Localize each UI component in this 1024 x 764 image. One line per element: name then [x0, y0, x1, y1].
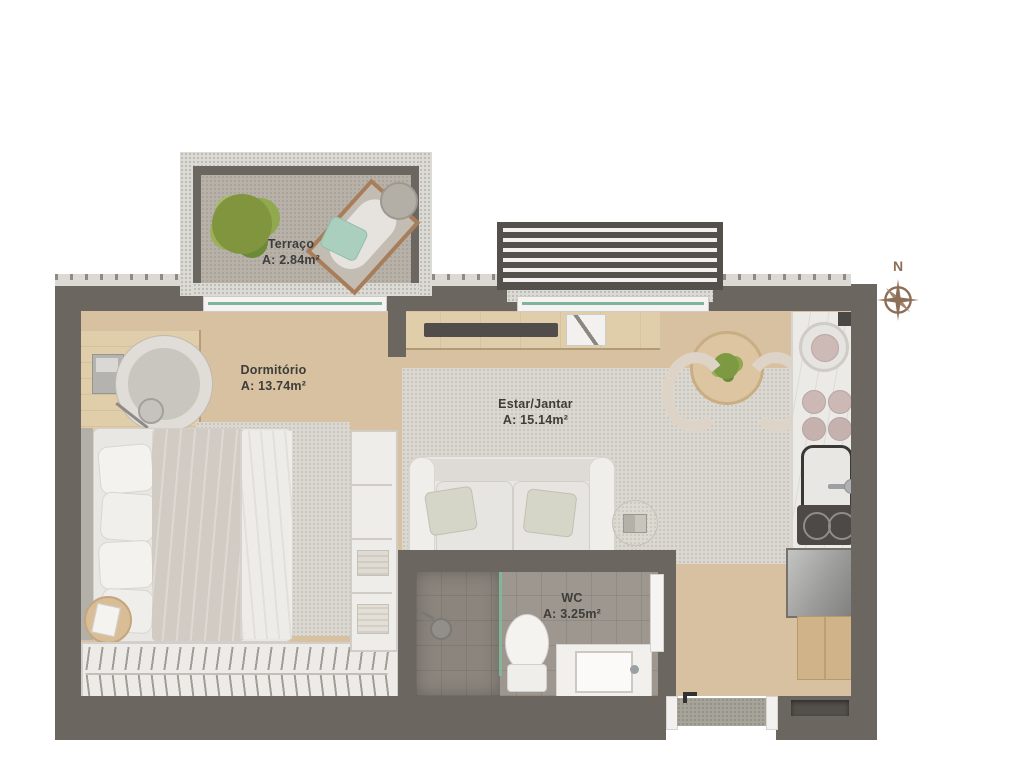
- floor-plan: N Terraço A: 2.84m² Dormitório A: 13.74m…: [0, 0, 1024, 764]
- laptop-screen: [96, 358, 118, 372]
- sofa-arm: [589, 457, 615, 561]
- entry-mat: [677, 698, 766, 726]
- compass-north-label: N: [866, 258, 930, 274]
- room-label-terrace: Terraço A: 2.84m²: [226, 236, 356, 269]
- towels: [357, 550, 389, 576]
- cooktop: [797, 505, 853, 545]
- sofa: [408, 456, 616, 562]
- terrace-outer-wall: [180, 152, 193, 296]
- terrace-sill: [193, 283, 419, 296]
- kitchen-cabinet: [797, 616, 853, 680]
- wall-stub: [388, 311, 406, 357]
- room-name: WC: [512, 590, 632, 606]
- room-label-wc: WC A: 3.25m²: [512, 590, 632, 623]
- window-glass: [208, 302, 382, 305]
- shelf: [352, 484, 392, 486]
- right-wall: [851, 284, 877, 740]
- plate: [828, 390, 852, 414]
- room-name: Dormitório: [196, 362, 351, 378]
- terrace-frame: [193, 166, 419, 175]
- top-wall: [55, 284, 877, 311]
- tv: [424, 323, 558, 337]
- sofa-pillow: [424, 486, 478, 537]
- duvet: [152, 429, 244, 641]
- louver-slats: [503, 228, 717, 284]
- book: [91, 603, 121, 637]
- bed-throw: [240, 431, 292, 639]
- hanger-row: [85, 647, 390, 670]
- room-area: A: 15.14m²: [458, 412, 613, 428]
- wc-door: [650, 574, 664, 652]
- decor-tray: [566, 314, 606, 346]
- plate: [802, 417, 826, 441]
- shower-floor: [416, 572, 500, 696]
- room-label-bedroom: Dormitório A: 13.74m²: [196, 362, 351, 395]
- room-name: Terraço: [226, 236, 356, 252]
- towels: [357, 604, 389, 634]
- plate: [828, 417, 852, 441]
- shelf-unit: [350, 430, 398, 652]
- pillow: [99, 491, 156, 543]
- sofa-pillow: [523, 488, 578, 538]
- wall-hatch: [723, 274, 851, 286]
- terrace-outer-wall: [180, 152, 432, 166]
- left-wall: [55, 284, 81, 740]
- open-book: [623, 514, 647, 533]
- hanger-row: [85, 673, 390, 698]
- kitchen-switch: [838, 312, 852, 326]
- bedside-table: [84, 596, 132, 644]
- burner: [803, 512, 831, 540]
- shower-head-icon: [430, 618, 452, 640]
- wall-hatch: [55, 274, 181, 286]
- wall-hatch: [432, 274, 497, 286]
- wc-top-wall: [398, 550, 676, 572]
- shelf: [352, 592, 392, 594]
- shelf: [352, 538, 392, 540]
- pillow: [98, 540, 154, 591]
- wc-vanity: [556, 644, 652, 698]
- wall-niche: [791, 700, 849, 716]
- toilet-tank: [507, 664, 547, 692]
- room-area: A: 3.25m²: [512, 606, 632, 622]
- compass-rose-icon: [876, 278, 920, 322]
- pillow: [97, 443, 155, 496]
- louver-panel: [497, 222, 723, 290]
- pouf: [612, 500, 658, 546]
- shower-glass: [499, 572, 502, 676]
- sofa-back: [411, 459, 611, 481]
- window-glass: [522, 302, 704, 305]
- room-area: A: 2.84m²: [226, 252, 356, 268]
- terrace-outer-wall: [419, 152, 432, 296]
- bowl-stack: [799, 322, 849, 372]
- door-jamb: [766, 696, 778, 730]
- compass: N: [866, 258, 930, 338]
- wc-faucet: [630, 665, 639, 674]
- terrace-frame: [193, 166, 201, 296]
- terrace-side-table: [380, 182, 418, 220]
- wc-left-wall: [398, 550, 416, 698]
- bowl: [811, 334, 839, 362]
- fridge: [786, 548, 854, 618]
- lamp-head: [138, 398, 164, 424]
- plate: [802, 390, 826, 414]
- room-area: A: 13.74m²: [196, 378, 351, 394]
- wc-sink: [575, 651, 633, 693]
- room-label-living: Estar/Jantar A: 15.14m²: [458, 396, 613, 429]
- door-handle: [683, 692, 687, 703]
- room-name: Estar/Jantar: [458, 396, 613, 412]
- living-window: [517, 296, 709, 312]
- bedroom-window: [203, 296, 387, 312]
